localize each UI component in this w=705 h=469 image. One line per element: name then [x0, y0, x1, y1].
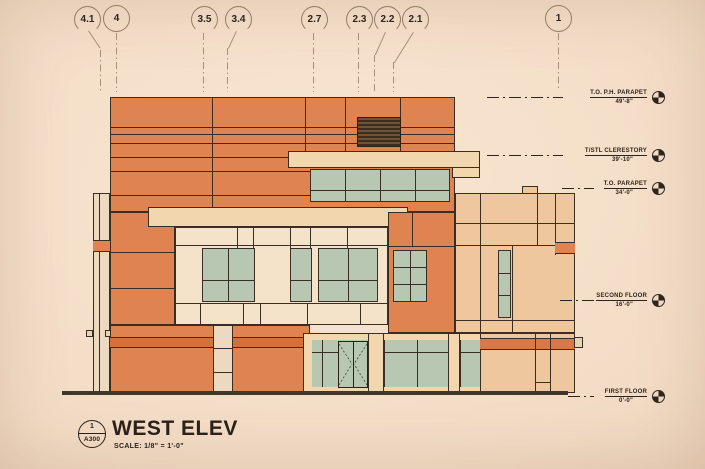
drawing-title: WEST ELEV: [112, 417, 238, 441]
grid-bubble: 1: [545, 5, 572, 32]
window-mullion: [345, 169, 346, 202]
panel-joint: [175, 245, 388, 246]
panel-joint: [213, 372, 233, 373]
detail-callout-divider: [78, 433, 106, 434]
panel-joint: [110, 195, 310, 196]
level-elevation: 34'-0": [521, 190, 633, 197]
panel-joint: [455, 223, 575, 224]
clerestory-roof-band: [288, 151, 480, 168]
window-mullion: [393, 284, 427, 285]
right-wing-wall: [455, 193, 575, 333]
grid-label: 3.5: [198, 14, 212, 25]
panel-joint: [305, 97, 306, 157]
panel-joint: [260, 303, 261, 325]
panel-joint: [110, 288, 175, 289]
panel-joint: [213, 348, 233, 349]
pilaster: [368, 333, 384, 393]
accent-band: [480, 338, 575, 350]
window-mullion: [393, 267, 427, 268]
window-mullion: [415, 169, 416, 202]
ground-line: [62, 391, 568, 395]
slit-window: [498, 250, 511, 318]
window-mullion: [410, 250, 411, 302]
accent-band: [555, 242, 575, 254]
panel-joint: [412, 212, 413, 246]
scale-label: SCALE: 1/8" = 1'-0": [114, 443, 184, 450]
level-name: FIRST FLOOR: [605, 389, 647, 397]
panel-joint: [175, 303, 388, 304]
door-swing-lines: [338, 341, 368, 388]
grid-bubble: 2.7: [301, 6, 328, 33]
louver-vent: [357, 117, 401, 147]
panel-joint: [537, 193, 538, 245]
grid-label: 4.1: [81, 14, 95, 25]
grid-leader-line: [88, 30, 101, 48]
second-floor-window: [290, 248, 312, 302]
window-mullion: [498, 273, 511, 274]
grid-leader-line: [374, 55, 375, 92]
window-mullion: [384, 340, 385, 387]
level-name: T/STL CLERESTORY: [585, 148, 647, 156]
grid-label: 4: [114, 13, 120, 24]
grid-label: 2.1: [409, 14, 423, 25]
panel-joint: [200, 303, 201, 325]
grid-bubble: 2.3: [346, 6, 373, 33]
wall-sconce: [574, 337, 583, 348]
canopy-band: [148, 207, 408, 227]
window-mullion: [348, 248, 349, 302]
pilaster: [448, 333, 460, 393]
window-mullion: [318, 280, 378, 281]
panel-joint: [535, 382, 550, 383]
window-mullion: [228, 248, 229, 302]
datum-symbol: [652, 182, 665, 195]
datum-symbol: [652, 149, 665, 162]
grid-bubble: 3.5: [191, 6, 218, 33]
grid-leader-line: [558, 33, 559, 90]
grid-leader-line: [203, 33, 204, 92]
pilaster: [213, 325, 233, 393]
panel-joint: [360, 303, 361, 325]
datum-symbol: [652, 390, 665, 403]
detail-number: 1: [78, 423, 106, 430]
grid-bubble: 4.1: [74, 6, 101, 33]
level-name: T.O. P.H. PARAPET: [590, 90, 647, 98]
panel-joint: [99, 193, 100, 393]
window-mullion: [380, 169, 381, 202]
datum-symbol: [652, 294, 665, 307]
level-name: SECOND FLOOR: [596, 293, 647, 301]
grid-label: 3.4: [232, 14, 246, 25]
window-mullion: [310, 190, 450, 191]
datum-symbol: [652, 91, 665, 104]
grid-bubble: 4: [103, 5, 130, 32]
first-floor-wall: [110, 325, 310, 393]
level-elevation: 0'-0": [521, 398, 633, 405]
panel-joint: [550, 333, 551, 393]
panel-joint: [480, 193, 481, 333]
panel-joint: [110, 134, 455, 135]
panel-joint: [110, 143, 455, 144]
grid-label: 2.7: [308, 14, 322, 25]
grid-leader-line: [394, 32, 414, 63]
grid-bubble: 2.2: [374, 6, 401, 33]
window-mullion: [290, 280, 312, 281]
panel-joint: [388, 246, 455, 247]
panel-joint: [455, 320, 575, 321]
panel-joint: [243, 303, 244, 325]
grid-leader-line: [228, 31, 237, 49]
grid-leader-line: [358, 33, 359, 92]
panel-joint: [110, 252, 175, 253]
grid-label: 2.3: [353, 14, 367, 25]
grid-leader-line: [116, 33, 117, 92]
grid-leader-line: [393, 62, 394, 92]
grid-leader-line: [375, 32, 386, 55]
sheet-number: A300: [78, 436, 106, 443]
window-mullion: [498, 295, 511, 296]
level-elevation: 49'-8": [521, 99, 633, 106]
grid-leader-line: [313, 33, 314, 92]
left-pilaster: [93, 193, 110, 393]
level-name: T.O. PARAPET: [604, 181, 647, 189]
panel-joint: [345, 97, 346, 157]
panel-joint: [212, 97, 213, 212]
panel-joint: [110, 171, 310, 172]
window-mullion: [417, 340, 418, 387]
window-mullion: [322, 340, 323, 387]
level-elevation: 16'-0": [521, 302, 633, 309]
grid-leader-line: [227, 48, 228, 92]
grid-bubble: 2.1: [402, 6, 429, 33]
window-mullion: [460, 340, 461, 387]
panel-joint: [110, 127, 455, 128]
elevation-drawing-sheet: 4.1 4 3.5 3.4 2.7 2.3 2.2 2.1 1: [0, 0, 705, 469]
panel-joint: [535, 333, 536, 393]
accent-band: [110, 337, 310, 348]
grid-label: 1: [556, 13, 562, 24]
wall-sconce: [86, 330, 93, 337]
panel-joint: [307, 303, 308, 325]
window-mullion: [202, 280, 255, 281]
grid-bubble: 3.4: [225, 6, 252, 33]
wall-panel: [110, 212, 175, 325]
accent-band: [93, 240, 110, 252]
grid-leader-line: [100, 50, 101, 92]
grid-label: 2.2: [381, 14, 395, 25]
level-elevation: 39'-10": [521, 157, 633, 164]
